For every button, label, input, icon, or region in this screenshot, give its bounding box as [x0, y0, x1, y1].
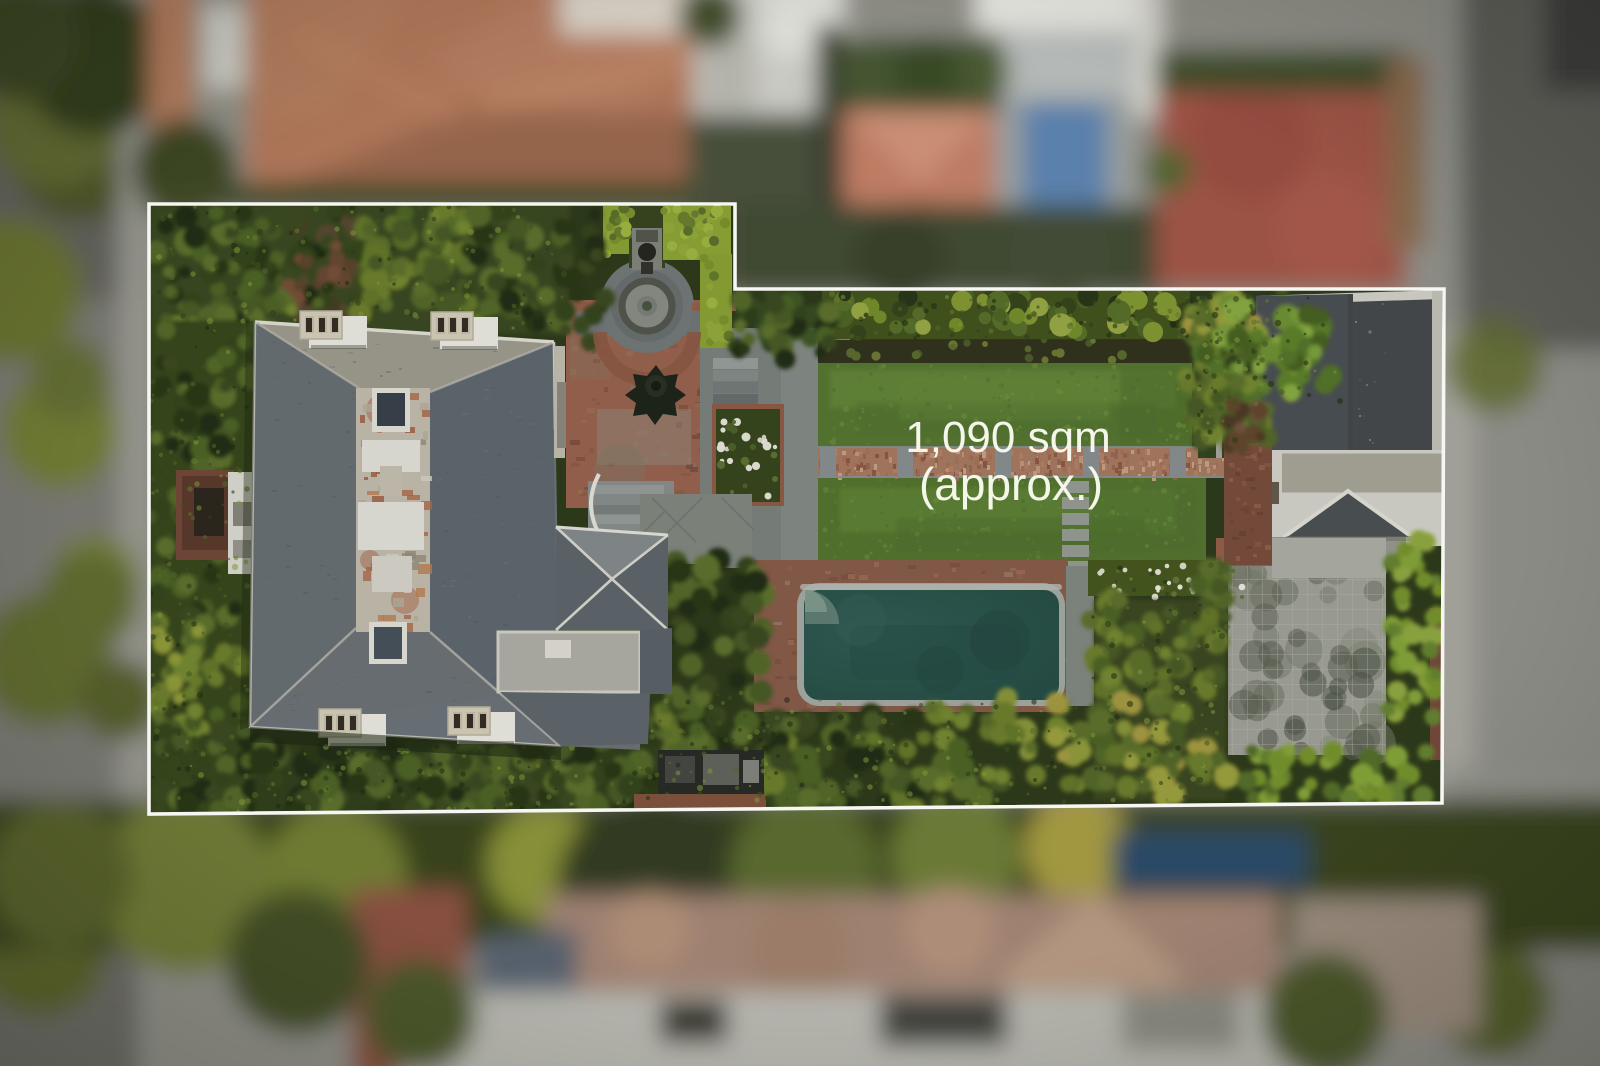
svg-text:(approx.): (approx.) — [919, 458, 1103, 510]
svg-text:1,090 sqm: 1,090 sqm — [905, 413, 1110, 462]
